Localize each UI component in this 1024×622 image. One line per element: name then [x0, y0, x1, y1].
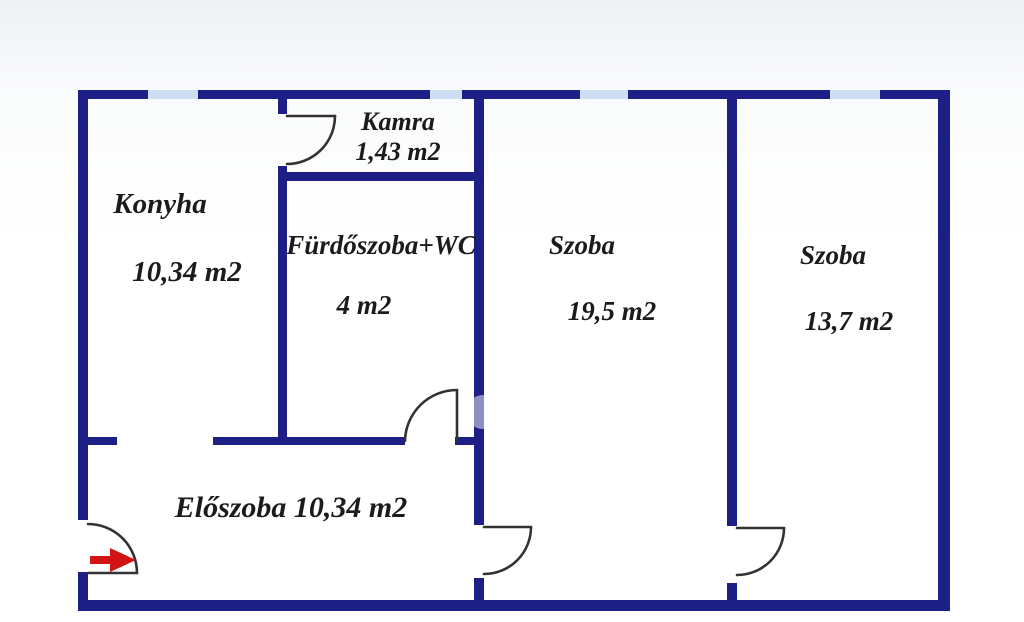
wall-szoba1-left-upper — [474, 90, 484, 525]
walls — [78, 90, 950, 611]
label-furdoszoba-area: 4 m2 — [336, 290, 392, 320]
wall-eloszoba-top-1 — [83, 437, 117, 445]
window-szoba1-icon — [580, 90, 628, 99]
room-labels: Konyha 10,34 m2 Kamra 1,43 m2 Fürdőszoba… — [112, 107, 893, 524]
wall-outer-right — [938, 90, 950, 611]
wall-konyha-kamra-stub — [278, 90, 287, 114]
wall-outer-bottom — [78, 600, 950, 611]
label-kamra-area: 1,43 m2 — [355, 137, 440, 166]
door-szoba1-swing-icon — [484, 527, 531, 574]
floor-plan-drawing: Konyha 10,34 m2 Kamra 1,43 m2 Fürdőszoba… — [0, 0, 1024, 622]
door-furdo-swing-icon — [405, 390, 457, 441]
watermark-icon — [466, 395, 500, 429]
floor-plan-canvas: Konyha 10,34 m2 Kamra 1,43 m2 Fürdőszoba… — [0, 0, 1024, 622]
door-szoba2-swing-icon — [737, 528, 784, 575]
label-szoba1-area: 19,5 m2 — [568, 296, 657, 326]
entrance-arrow-icon — [90, 548, 136, 572]
window-konyha-icon — [148, 90, 198, 99]
wall-szoba1-left-lower — [474, 578, 484, 604]
label-eloszoba: Előszoba 10,34 m2 — [174, 491, 408, 524]
wall-kamra-furdo — [278, 172, 483, 181]
label-furdoszoba-name: Fürdőszoba+WC — [285, 230, 476, 260]
window-szoba2-icon — [830, 90, 880, 99]
label-konyha-area: 10,34 m2 — [132, 256, 242, 288]
wall-eloszoba-top-2 — [213, 437, 405, 445]
label-kamra-name: Kamra — [360, 107, 435, 136]
label-konyha-name: Konyha — [112, 188, 206, 220]
wall-outer-left-upper — [78, 90, 88, 520]
wall-outer-top — [78, 90, 950, 99]
wall-szoba-divider-upper — [727, 90, 737, 526]
label-szoba1-name: Szoba — [549, 230, 615, 260]
window-kamra-icon — [430, 90, 462, 99]
wall-szoba-divider-lower — [727, 583, 737, 604]
door-kamra-swing-icon — [287, 116, 335, 164]
label-szoba2-area: 13,7 m2 — [805, 306, 894, 336]
label-szoba2-name: Szoba — [800, 240, 866, 270]
wall-konyha-furdo — [278, 166, 287, 445]
